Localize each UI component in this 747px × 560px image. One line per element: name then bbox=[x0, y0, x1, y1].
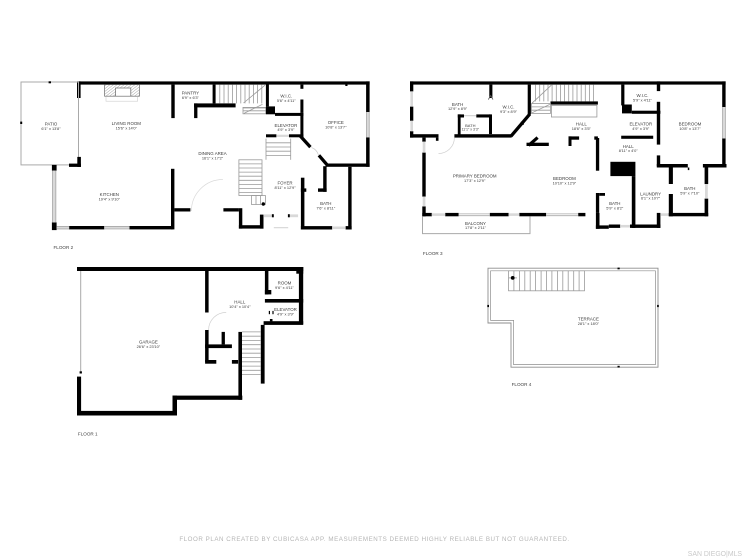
svg-text:11'1" x 3'3": 11'1" x 3'3" bbox=[462, 128, 480, 132]
svg-text:5'6" x 4'11": 5'6" x 4'11" bbox=[277, 98, 297, 103]
svg-text:17'3" x 12'9": 17'3" x 12'9" bbox=[464, 178, 486, 183]
svg-text:7'6" x 8'11": 7'6" x 8'11" bbox=[316, 205, 336, 210]
svg-text:4'9" x 3'9": 4'9" x 3'9" bbox=[277, 312, 295, 317]
svg-text:9'6" x 4'11": 9'6" x 4'11" bbox=[275, 285, 295, 290]
svg-text:18'6" x 3'5": 18'6" x 3'5" bbox=[572, 126, 592, 131]
svg-text:6'9" x 6'3": 6'9" x 6'3" bbox=[182, 95, 200, 100]
svg-text:10'8" x 13'7": 10'8" x 13'7" bbox=[679, 126, 701, 131]
svg-text:6'1" x 10'7": 6'1" x 10'7" bbox=[641, 196, 661, 201]
svg-text:16'1" x 17'2": 16'1" x 17'2" bbox=[202, 156, 224, 161]
svg-text:26'6" x 23'10": 26'6" x 23'10" bbox=[137, 344, 161, 349]
svg-text:SAN DIEGO|MLS: SAN DIEGO|MLS bbox=[688, 551, 743, 558]
svg-text:28'1" x 18'0": 28'1" x 18'0" bbox=[578, 321, 600, 326]
svg-text:FLOOR 4: FLOOR 4 bbox=[512, 382, 532, 387]
svg-text:5'9" x 7'10": 5'9" x 7'10" bbox=[680, 190, 700, 195]
svg-text:19'4" x 9'10": 19'4" x 9'10" bbox=[99, 197, 121, 202]
svg-text:FLOOR PLAN CREATED BY CUBICASA: FLOOR PLAN CREATED BY CUBICASA APP. MEAS… bbox=[179, 536, 569, 543]
svg-text:8'11" x 12'9": 8'11" x 12'9" bbox=[274, 185, 296, 190]
svg-text:8'11" x 4'0": 8'11" x 4'0" bbox=[619, 148, 639, 153]
svg-text:10'10" x 12'9": 10'10" x 12'9" bbox=[553, 181, 577, 186]
svg-text:FLOOR 2: FLOOR 2 bbox=[54, 245, 74, 250]
svg-text:FLOOR 1: FLOOR 1 bbox=[78, 432, 98, 437]
svg-text:5'9" x 8'2": 5'9" x 8'2" bbox=[606, 206, 624, 211]
svg-text:15'6" x 14'0": 15'6" x 14'0" bbox=[116, 126, 138, 131]
svg-text:17'8" x 2'11": 17'8" x 2'11" bbox=[465, 225, 487, 230]
svg-text:FLOOR 3: FLOOR 3 bbox=[423, 251, 443, 256]
svg-text:4'9" x 3'9": 4'9" x 3'9" bbox=[277, 127, 295, 132]
svg-text:9'3" x 8'9": 9'3" x 8'9" bbox=[500, 109, 518, 114]
svg-text:6'1" x 13'8": 6'1" x 13'8" bbox=[41, 126, 61, 131]
svg-text:10'4" x 10'4": 10'4" x 10'4" bbox=[229, 304, 251, 309]
svg-text:5'9" x 4'11": 5'9" x 4'11" bbox=[633, 97, 653, 102]
svg-text:12'9" x 8'9": 12'9" x 8'9" bbox=[448, 106, 468, 111]
svg-text:4'9" x 3'9": 4'9" x 3'9" bbox=[632, 126, 650, 131]
svg-text:10'8" x 13'7": 10'8" x 13'7" bbox=[325, 125, 347, 130]
